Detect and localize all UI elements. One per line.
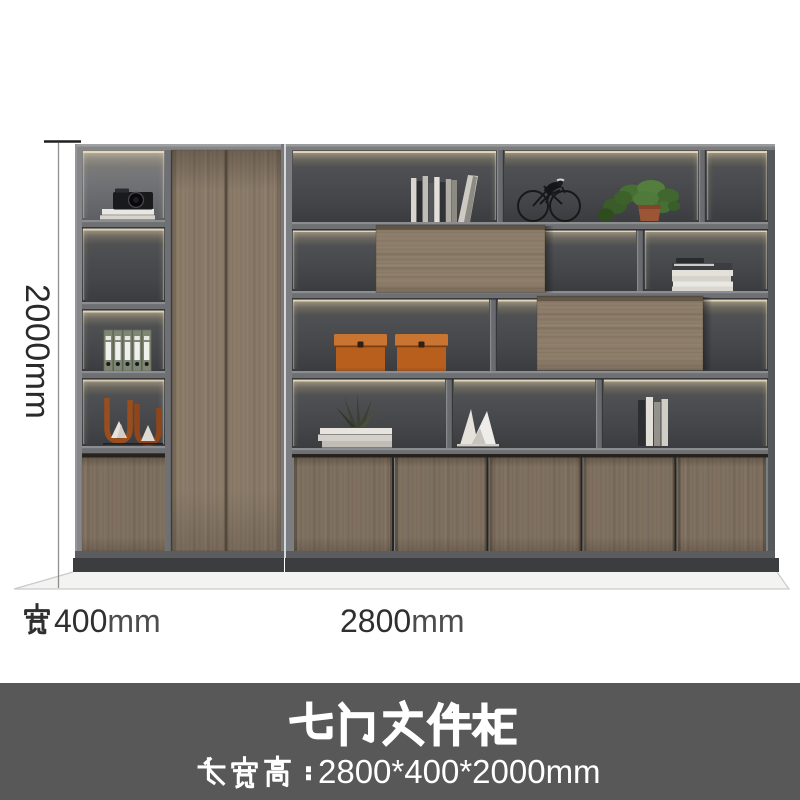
svg-text:2000mm: 2000mm (18, 284, 56, 419)
svg-text:2800mm: 2800mm (340, 603, 465, 639)
svg-text:2800*400*2000mm: 2800*400*2000mm (318, 753, 601, 790)
svg-text:400mm: 400mm (54, 603, 161, 639)
